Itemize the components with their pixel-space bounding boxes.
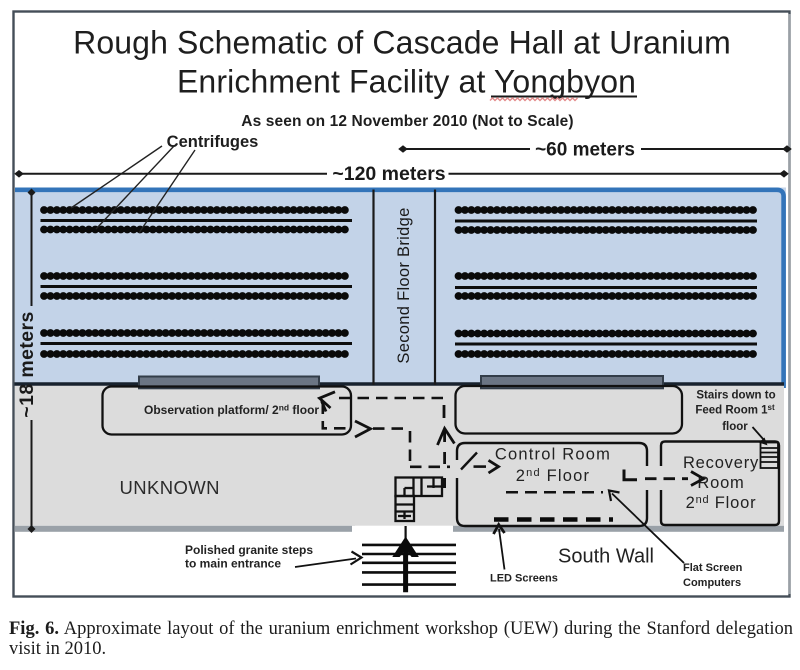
svg-text:South Wall: South Wall <box>558 546 654 568</box>
svg-text:As seen on 12 November 2010 (N: As seen on 12 November 2010 (Not to Scal… <box>241 113 573 130</box>
svg-text:Room: Room <box>697 474 744 492</box>
svg-text:~60 meters: ~60 meters <box>535 140 635 161</box>
svg-text:Enrichment Facility at Yongbyo: Enrichment Facility at Yongbyon <box>177 64 636 100</box>
svg-text:Polished granite steps: Polished granite steps <box>185 543 313 557</box>
svg-text:UNKNOWN: UNKNOWN <box>120 477 220 498</box>
svg-text:Recovery: Recovery <box>683 454 759 472</box>
svg-text:Control Room: Control Room <box>495 446 611 464</box>
svg-text:LED Screens: LED Screens <box>490 573 558 585</box>
svg-text:Stairs down to: Stairs down to <box>696 390 775 402</box>
svg-text:~120 meters: ~120 meters <box>332 163 445 185</box>
svg-text:Rough Schematic of Cascade Hal: Rough Schematic of Cascade Hall at Urani… <box>73 25 731 61</box>
svg-text:Observation platform/ 2nd floo: Observation platform/ 2nd floor <box>144 403 319 418</box>
svg-text:Centrifuges: Centrifuges <box>167 133 259 151</box>
svg-text:Feed Room 1st: Feed Room 1st <box>695 403 775 417</box>
svg-text:Computers: Computers <box>683 577 741 589</box>
svg-text:floor: floor <box>722 421 748 433</box>
svg-text:to main entrance: to main entrance <box>185 557 281 571</box>
svg-text:~18 meters: ~18 meters <box>16 311 38 417</box>
svg-text:Second Floor Bridge: Second Floor Bridge <box>395 207 413 363</box>
svg-text:Flat Screen: Flat Screen <box>683 562 743 574</box>
